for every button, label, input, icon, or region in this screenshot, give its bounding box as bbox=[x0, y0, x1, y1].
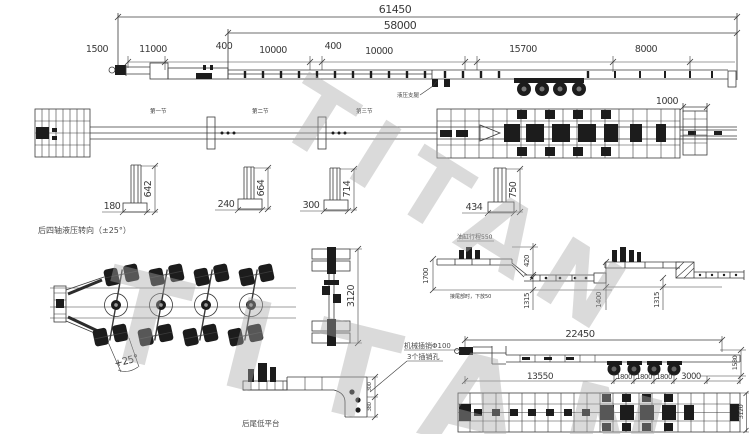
dim-seg-3: 400 bbox=[216, 41, 233, 52]
steering-title: 后四轴液压转向（±25°） bbox=[38, 225, 131, 235]
drawing-sheet: 61450 58000 1500 11000 400 10000 400 100… bbox=[0, 0, 750, 434]
dim-seg-8: 8000 bbox=[635, 44, 658, 55]
cross-section-1: 642 180 bbox=[102, 163, 158, 215]
side-view-extended: 液压支腿 bbox=[109, 63, 736, 99]
dim-seg-7: 15700 bbox=[509, 44, 537, 55]
dim-seg-4: 10000 bbox=[259, 45, 287, 56]
brand-watermark: TITAN TITAN bbox=[85, 56, 720, 434]
dim-seg-6: 10000 bbox=[365, 46, 393, 57]
gn2-deck-dim: 1315 bbox=[653, 292, 661, 308]
gn1-lower-note: 接尾部时，下放50 bbox=[450, 293, 491, 300]
gn1-height-dim: 1700 bbox=[422, 268, 430, 284]
support-leg-label: 液压支腿 bbox=[397, 91, 420, 99]
section2-height: 664 bbox=[256, 179, 267, 196]
dim-deck-length: 58000 bbox=[384, 19, 417, 32]
section-label-1: 第一节 bbox=[150, 107, 167, 115]
dim-seg-1: 1500 bbox=[86, 44, 109, 55]
trailer-drawing-canvas: 61450 58000 1500 11000 400 10000 400 100… bbox=[0, 0, 750, 434]
section3-width: 300 bbox=[303, 200, 320, 211]
section1-height: 642 bbox=[143, 180, 154, 197]
dim-total-length: 61450 bbox=[379, 3, 412, 16]
dim-seg-5: 400 bbox=[325, 41, 342, 52]
section1-width: 180 bbox=[104, 201, 121, 212]
dim-rear-extension: 1000 bbox=[656, 96, 679, 107]
rear-unit-height-dim: 1580 bbox=[731, 355, 739, 370]
rear-unit-width-dim: 3120 bbox=[737, 404, 745, 419]
cross-section-2: 664 240 bbox=[215, 165, 271, 213]
dim-seg-2: 11000 bbox=[139, 44, 167, 55]
section2-width: 240 bbox=[218, 199, 235, 210]
top-dimension-lines: 61450 58000 1500 11000 400 10000 400 100… bbox=[86, 3, 740, 80]
section-label-2: 第二节 bbox=[252, 107, 269, 115]
